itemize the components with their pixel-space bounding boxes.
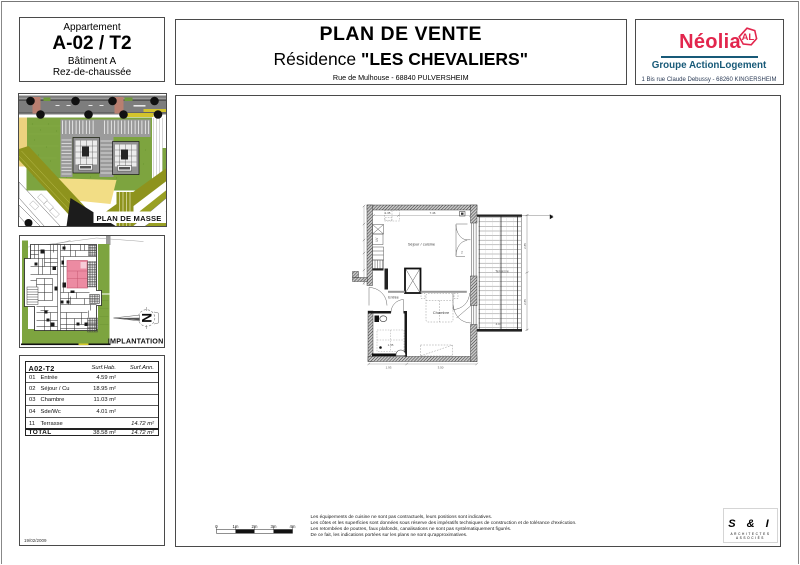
svg-text:2m: 2m — [251, 524, 257, 529]
svg-text:1.35: 1.35 — [387, 343, 393, 347]
svg-text:1m: 1m — [232, 524, 238, 529]
svg-text:4.07: 4.07 — [495, 322, 501, 326]
svg-text:AL: AL — [742, 32, 755, 43]
svg-text:7.46: 7.46 — [429, 211, 435, 215]
svg-text:4m: 4m — [289, 524, 295, 529]
svg-text:Séjour / cuisine: Séjour / cuisine — [407, 242, 435, 247]
svg-text:0: 0 — [215, 524, 218, 529]
svg-text:LV: LV — [375, 237, 379, 242]
svg-text:Terrasse: Terrasse — [495, 270, 509, 274]
svg-text:2: 2 — [461, 251, 463, 255]
svg-text:3.50: 3.50 — [437, 366, 443, 370]
svg-text:1.93: 1.93 — [385, 366, 391, 370]
svg-text:Entrée: Entrée — [388, 296, 399, 300]
svg-text:2.85: 2.85 — [523, 299, 527, 305]
svg-text:Chambre: Chambre — [432, 310, 449, 315]
svg-text:2.85: 2.85 — [523, 243, 527, 249]
svg-text:PLAN DE MASSE: PLAN DE MASSE — [96, 214, 161, 223]
svg-text:N: N — [139, 312, 154, 322]
svg-text:1.35: 1.35 — [384, 211, 390, 215]
svg-text:IMPLANTATION: IMPLANTATION — [107, 336, 163, 345]
svg-text:3m: 3m — [270, 524, 276, 529]
